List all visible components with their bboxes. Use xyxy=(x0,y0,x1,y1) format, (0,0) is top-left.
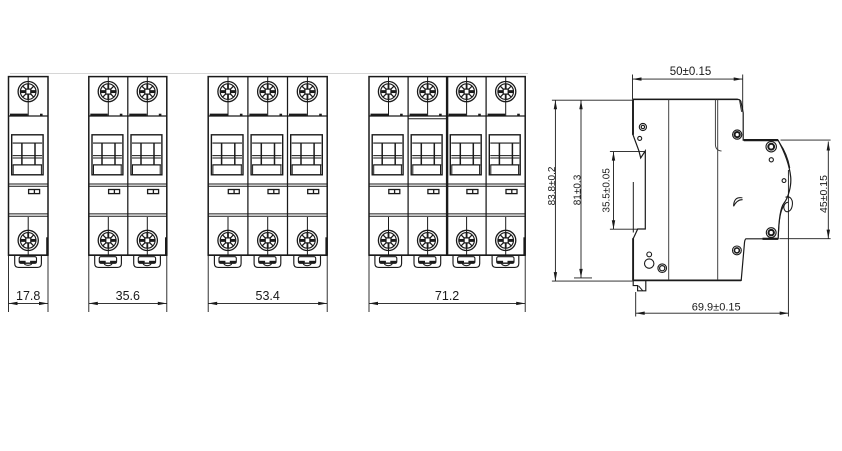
svg-text:35.5±0.05: 35.5±0.05 xyxy=(602,168,613,213)
svg-text:45±0.15: 45±0.15 xyxy=(818,175,830,213)
svg-text:53.4: 53.4 xyxy=(256,289,280,303)
svg-text:81±0.3: 81±0.3 xyxy=(573,174,584,205)
svg-text:50±0.15: 50±0.15 xyxy=(670,66,712,78)
svg-text:69.9±0.15: 69.9±0.15 xyxy=(692,302,741,314)
svg-text:71.2: 71.2 xyxy=(435,289,459,303)
svg-text:83.8±0.2: 83.8±0.2 xyxy=(547,166,558,205)
svg-text:35.6: 35.6 xyxy=(116,289,140,303)
svg-text:17.8: 17.8 xyxy=(16,289,40,303)
